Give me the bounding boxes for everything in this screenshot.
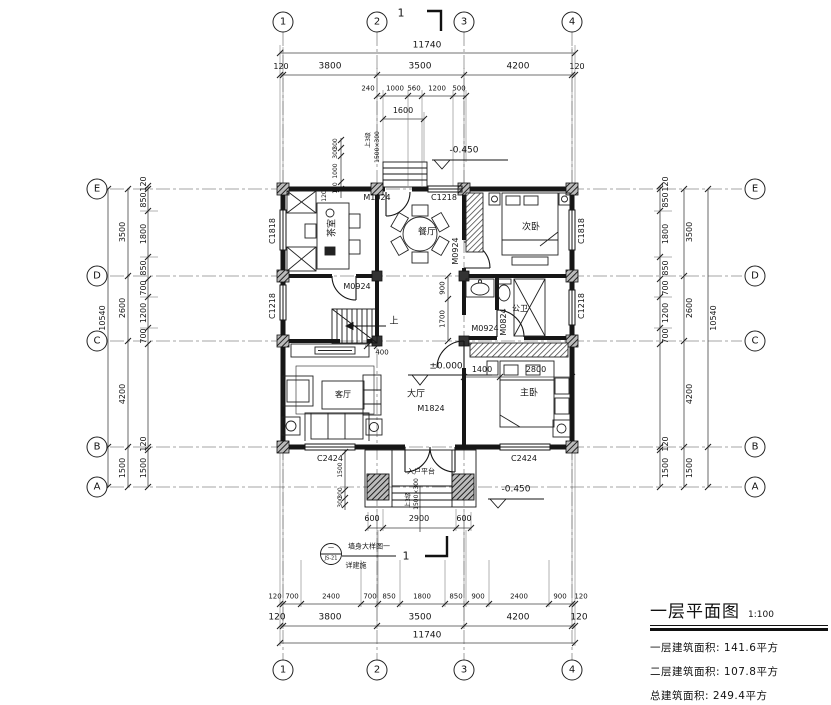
grid-bubble-row-D-right: D (745, 266, 766, 287)
dim: 1500 (119, 458, 127, 478)
dim: 1800 (413, 594, 431, 601)
dim: 900 (471, 594, 484, 601)
grid-bubble-row-B-right: B (745, 437, 766, 458)
grid-bubble-row-E-right: E (745, 179, 766, 200)
grid-bubble-col-3-top: 3 (454, 12, 475, 33)
window-C1218-left (280, 285, 286, 320)
dim: 1000 (386, 86, 404, 93)
dim: 1500 (140, 458, 148, 478)
dim: 400 (375, 350, 388, 357)
dim: 120 (662, 176, 670, 191)
grid-bubble-row-A-right: A (745, 477, 766, 498)
dim: 11740 (413, 42, 442, 51)
stair-steps-bottom: 上3级 (406, 492, 412, 508)
furniture-living (282, 344, 382, 441)
dim: 700 (140, 328, 148, 343)
grid-bubble-row-E-left: E (87, 179, 108, 200)
furniture-bed2 (466, 193, 570, 265)
grid-bubble-col-3-bottom: 3 (454, 660, 475, 681)
door-M1024-label: M1024 (363, 194, 390, 202)
dim: 1500 (686, 458, 694, 478)
dim: 1500 (338, 462, 344, 477)
area-line-1: 一层建筑面积: 141.6平方 (650, 640, 828, 655)
level-bottom-symbol (488, 499, 544, 508)
window-C1818-right-label: C1818 (578, 218, 586, 244)
dim: 120 (268, 594, 281, 601)
entry-platform-top (383, 162, 427, 187)
dim: 120 (268, 614, 285, 623)
dim: 3800 (319, 63, 342, 72)
dim: 3500 (119, 222, 127, 242)
dim: 300 (333, 147, 339, 158)
dim: 3500 (409, 614, 432, 623)
detail-callout-top: 一 (328, 546, 334, 552)
dim: 4200 (507, 63, 530, 72)
grid-bubble-col-1-bottom: 1 (273, 660, 294, 681)
room-bed1-label: 主卧 (520, 390, 538, 399)
dim: 3500 (409, 63, 432, 72)
window-C2424-br (500, 444, 550, 450)
window-C1218-top-label: C1218 (431, 194, 457, 202)
window-C1818-left-label: C1818 (269, 218, 277, 244)
area-line-2: 二层建筑面积: 107.8平方 (650, 664, 828, 679)
dim: 4200 (119, 384, 127, 404)
window-C1218-right (569, 290, 575, 325)
level-bottom: -0.450 (501, 486, 530, 495)
grid-bubble-row-A-left: A (87, 477, 108, 498)
stair-up-label: 上 (389, 318, 398, 327)
room-bath-label: 公卫 (512, 305, 528, 313)
level-zero-symbol (408, 375, 492, 385)
dim: 1200 (662, 303, 670, 323)
room-living-label: 客厅 (335, 391, 351, 399)
dim: 240 (361, 86, 374, 93)
dim: 4200 (686, 384, 694, 404)
dim: 1200 (428, 86, 446, 93)
dim: 2900 (409, 515, 429, 523)
detail-callout-code: JS-21 (325, 557, 338, 562)
drawing-scale: 1:100 (748, 610, 774, 622)
dim: 120 (574, 594, 587, 601)
dim: 850 (449, 594, 462, 601)
dim: 2600 (686, 298, 694, 318)
detail-callout-text: 墙身大样图一 (348, 544, 390, 551)
dim: 120 (570, 614, 587, 623)
window-C1818-right (569, 210, 575, 250)
dim: 120 (140, 176, 148, 191)
dim: 300 (338, 496, 344, 507)
window-C1818-left (280, 210, 286, 250)
dim: 1700 (440, 310, 447, 328)
drawing-title: 一层平面图 (650, 597, 740, 622)
grid-bubble-col-4-bottom: 4 (562, 660, 583, 681)
dim: 600 (456, 515, 471, 523)
dim: 850 (662, 192, 670, 207)
dim: 1200 (140, 303, 148, 323)
section-mark-1-top: 1 (398, 8, 405, 19)
door-M0924-hall-label: M0924 (471, 325, 498, 333)
window-C2424-br-label: C2424 (511, 455, 537, 463)
title-underline-thick (650, 628, 828, 631)
grid-bubble-col-1-top: 1 (273, 12, 294, 33)
section-mark-1-bottom: 1 (403, 551, 410, 562)
window-C1218-left-label: C1218 (269, 293, 277, 319)
dim: 2600 (119, 298, 127, 318)
dim: 1800 (662, 224, 670, 244)
dim: 700 (363, 594, 376, 601)
title-underline-thin (650, 625, 828, 626)
dim: 3800 (319, 614, 342, 623)
dim: 850 (140, 192, 148, 207)
dim: 850 (140, 260, 148, 275)
grid-bubble-col-4-top: 4 (562, 12, 583, 33)
door-M1824-label: M1824 (417, 405, 444, 413)
dim: 560 (407, 86, 420, 93)
stair-size-top: 1500×300 (375, 131, 381, 163)
dim: 700 (285, 594, 298, 601)
dim: 1800 (140, 224, 148, 244)
dim: 1400 (472, 366, 492, 374)
room-dining-label: 餐厅 (418, 229, 436, 238)
dim: 700 (140, 280, 148, 295)
level-top-symbol (432, 160, 508, 169)
door-M0924-tea-label: M0924 (343, 283, 370, 291)
dim: 120 (273, 63, 288, 71)
grid-lines (110, 32, 742, 660)
grid-bubble-col-2-top: 2 (367, 12, 388, 33)
dim: 1600 (393, 107, 413, 115)
dim: 900 (553, 594, 566, 601)
grid-bubble-col-2-bottom: 2 (367, 660, 388, 681)
window-C1218-top (428, 186, 462, 192)
dim: 120 (333, 182, 339, 193)
grid-bubble-row-C-right: C (745, 331, 766, 352)
area-line-3: 总建筑面积: 249.4平方 (650, 688, 828, 703)
stair-size-bottom: 1500×300 (414, 478, 420, 510)
stair-steps-top: 上3级 (366, 132, 372, 148)
detail-callout-note: 详建施 (346, 563, 367, 570)
dim: 4200 (507, 614, 530, 623)
dim: 850 (662, 260, 670, 275)
window-C1218-right-label: C1218 (578, 293, 586, 319)
dim: 3500 (686, 222, 694, 242)
level-zero: ±0.000 (429, 363, 462, 372)
floor-plan-canvas: 茶室餐厅次卧公卫主卧客厅大厅入户平台M1024C1218M0924M0924M0… (0, 0, 831, 705)
dim: 1000 (333, 163, 339, 178)
entry-platform-bottom (365, 450, 476, 507)
dim: 700 (662, 328, 670, 343)
title-block: 一层平面图 1:100 一层建筑面积: 141.6平方 二层建筑面积: 107.… (650, 597, 828, 703)
dim: 120 (322, 190, 328, 201)
dim: 850 (382, 594, 395, 601)
dim: 11740 (413, 632, 442, 641)
room-hall-label: 大厅 (407, 391, 425, 400)
dim: 10540 (710, 305, 718, 330)
furniture-tea-room (287, 191, 360, 271)
dim: 1500 (662, 458, 670, 478)
dim: 2800 (526, 366, 546, 374)
dim: 120 (569, 63, 584, 71)
grid-bubble-row-B-left: B (87, 437, 108, 458)
grid-bubble-row-D-left: D (87, 266, 108, 287)
dim: 120 (662, 436, 670, 451)
room-bed2-label: 次卧 (522, 224, 540, 233)
dim: 2400 (510, 594, 528, 601)
dim: 500 (452, 86, 465, 93)
room-tea-label: 茶室 (329, 219, 338, 237)
dim: 700 (662, 280, 670, 295)
level-top: -0.450 (449, 147, 478, 156)
dim: 10540 (99, 305, 107, 330)
door-M0924-bed2-label: M0924 (452, 237, 460, 264)
door-M0824-label: M0824 (500, 308, 508, 335)
room-entry-platform-label: 入户平台 (407, 469, 435, 476)
grid-bubble-row-C-left: C (87, 331, 108, 352)
dim: 900 (440, 281, 447, 294)
dim: 120 (140, 436, 148, 451)
dim: 600 (364, 515, 379, 523)
dim: 2400 (322, 594, 340, 601)
